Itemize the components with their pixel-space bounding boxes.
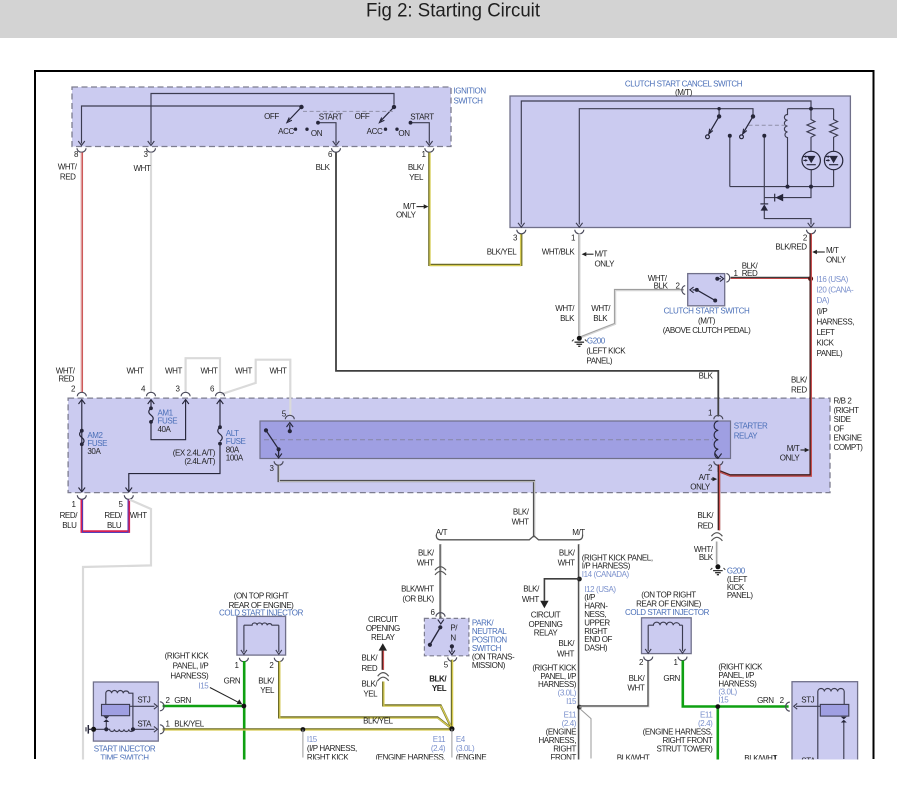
svg-text:OPENING: OPENING [366, 624, 400, 633]
svg-text:I15: I15 [566, 697, 577, 706]
svg-text:BLK/: BLK/ [791, 376, 808, 385]
svg-text:STRUT TOWER): STRUT TOWER) [657, 745, 714, 754]
svg-text:WHT: WHT [201, 366, 218, 375]
svg-text:KICK: KICK [817, 339, 835, 348]
svg-text:BLK/: BLK/ [418, 549, 435, 558]
svg-text:WHT/: WHT/ [555, 304, 575, 313]
svg-text:A/T: A/T [699, 473, 711, 482]
svg-text:R/B 2: R/B 2 [834, 397, 853, 406]
svg-text:WHT: WHT [134, 164, 151, 173]
svg-text:OFF: OFF [264, 112, 279, 121]
svg-text:BLK: BLK [654, 282, 669, 291]
svg-text:BLK/: BLK/ [558, 639, 575, 648]
svg-text:BLK: BLK [316, 163, 331, 172]
svg-text:BLK/WHT: BLK/WHT [401, 585, 434, 594]
svg-text:GRN: GRN [663, 674, 680, 683]
svg-text:SIDE: SIDE [834, 415, 851, 424]
svg-text:BLK/: BLK/ [523, 585, 540, 594]
svg-text:ON: ON [398, 129, 410, 138]
svg-text:YEL: YEL [363, 690, 378, 699]
svg-text:HARNESS,: HARNESS, [817, 317, 855, 326]
svg-text:I14 (CANADA): I14 (CANADA) [582, 570, 630, 579]
svg-text:WHT: WHT [270, 366, 287, 375]
svg-text:BLK/: BLK/ [429, 675, 447, 684]
svg-text:WHT: WHT [512, 518, 529, 527]
svg-text:ONLY: ONLY [396, 210, 417, 219]
svg-text:BLK/: BLK/ [258, 676, 275, 685]
svg-text:M/T: M/T [787, 444, 800, 453]
svg-text:WHT: WHT [127, 366, 144, 375]
svg-text:ENGINE: ENGINE [834, 434, 862, 443]
svg-text:RED: RED [362, 664, 378, 673]
svg-text:REAR OF ENGINE): REAR OF ENGINE) [636, 600, 702, 609]
svg-text:STJ: STJ [801, 696, 814, 705]
svg-text:(LEFT KICK: (LEFT KICK [586, 347, 626, 356]
svg-text:BLK: BLK [593, 314, 608, 323]
svg-text:YEL: YEL [409, 173, 424, 182]
svg-text:COMPT): COMPT) [834, 443, 864, 452]
svg-text:START INJECTOR: START INJECTOR [94, 744, 156, 753]
svg-text:WHT: WHT [417, 559, 434, 568]
svg-text:OF: OF [834, 424, 845, 433]
svg-text:CIRCUIT: CIRCUIT [531, 611, 561, 620]
svg-text:RED: RED [697, 521, 713, 530]
svg-text:PANEL, I/P: PANEL, I/P [173, 661, 209, 670]
svg-text:ONLY: ONLY [595, 259, 616, 268]
svg-text:(ABOVE CLUTCH PEDAL): (ABOVE CLUTCH PEDAL) [663, 326, 751, 335]
svg-text:BLK: BLK [560, 314, 575, 323]
svg-text:STJ: STJ [137, 696, 150, 705]
svg-text:I20 (CANA-: I20 (CANA- [817, 286, 854, 295]
svg-text:ONLY: ONLY [826, 256, 847, 265]
svg-text:ACC: ACC [367, 127, 383, 136]
svg-text:I15: I15 [307, 735, 318, 744]
svg-text:100A: 100A [226, 454, 244, 463]
svg-text:WHT: WHT [165, 366, 182, 375]
svg-text:MISSION): MISSION) [472, 661, 506, 670]
svg-text:(3.0L): (3.0L) [456, 744, 475, 753]
svg-text:Fig 2: Starting Circuit: Fig 2: Starting Circuit [366, 0, 541, 22]
svg-text:RED/: RED/ [60, 511, 79, 520]
svg-text:WHT: WHT [130, 511, 147, 520]
svg-text:COLD START INJECTOR: COLD START INJECTOR [625, 608, 710, 617]
svg-text:ON: ON [311, 129, 323, 138]
svg-text:ONLY: ONLY [690, 483, 711, 492]
svg-text:SWITCH: SWITCH [454, 97, 484, 106]
svg-text:CIRCUIT: CIRCUIT [368, 615, 398, 624]
svg-text:RELAY: RELAY [371, 633, 396, 642]
svg-text:(RIGHT: (RIGHT [834, 406, 860, 415]
svg-text:BLK/RED: BLK/RED [775, 243, 807, 252]
svg-text:BLK/YEL: BLK/YEL [487, 248, 517, 257]
svg-text:START: START [410, 112, 434, 121]
svg-text:I15: I15 [718, 696, 729, 705]
svg-text:G200: G200 [587, 337, 606, 346]
svg-text:40A: 40A [158, 425, 172, 434]
svg-text:(RIGHT KICK: (RIGHT KICK [165, 651, 210, 660]
svg-text:ONLY: ONLY [780, 454, 801, 463]
svg-text:30A: 30A [87, 447, 101, 456]
svg-text:(M/T): (M/T) [698, 316, 716, 325]
svg-text:RELAY: RELAY [734, 432, 759, 441]
svg-text:GRN: GRN [757, 696, 774, 705]
svg-text:(I/P HARNESS,: (I/P HARNESS, [307, 744, 357, 753]
svg-text:GRN: GRN [174, 696, 191, 705]
svg-text:BLK/YEL: BLK/YEL [174, 719, 204, 728]
svg-text:WHT: WHT [558, 559, 575, 568]
svg-text:A/T: A/T [436, 528, 448, 537]
svg-text:OFF: OFF [355, 112, 370, 121]
svg-text:GRN: GRN [224, 676, 241, 685]
svg-text:(2.4): (2.4) [431, 744, 446, 753]
svg-text:WHT/: WHT/ [58, 163, 78, 172]
svg-text:M/T: M/T [826, 246, 839, 255]
svg-text:(M/T): (M/T) [675, 88, 693, 97]
svg-text:PANEL): PANEL) [586, 357, 613, 366]
svg-text:YEL: YEL [260, 686, 275, 695]
svg-text:BLK: BLK [699, 553, 714, 562]
svg-text:STA: STA [137, 719, 152, 728]
svg-text:BLK/: BLK/ [513, 508, 530, 517]
svg-text:BLU: BLU [62, 521, 77, 530]
svg-text:(ON TOP RIGHT: (ON TOP RIGHT [641, 590, 696, 599]
svg-text:BLK/YEL: BLK/YEL [363, 716, 393, 725]
svg-text:WHT/BLK: WHT/BLK [542, 248, 576, 257]
svg-text:BLK/: BLK/ [697, 511, 714, 520]
svg-text:M/T: M/T [572, 528, 585, 537]
svg-text:(I/P: (I/P [817, 307, 828, 316]
svg-text:RED: RED [58, 374, 74, 383]
svg-text:(2.4L A/T): (2.4L A/T) [184, 457, 215, 466]
svg-text:RED: RED [791, 385, 807, 394]
svg-text:BLK: BLK [699, 372, 714, 381]
svg-text:N: N [450, 633, 456, 642]
svg-text:BLU: BLU [107, 521, 122, 530]
svg-text:WHT: WHT [627, 683, 644, 692]
svg-text:BLK/: BLK/ [362, 680, 379, 689]
svg-text:BLK/: BLK/ [362, 654, 379, 663]
svg-text:RED: RED [60, 172, 76, 181]
svg-text:HARNESS): HARNESS) [170, 671, 209, 680]
svg-text:G200: G200 [727, 567, 746, 576]
svg-text:WHT: WHT [522, 595, 539, 604]
svg-text:STARTER: STARTER [734, 421, 768, 430]
svg-text:CLUTCH START SWITCH: CLUTCH START SWITCH [664, 307, 750, 316]
svg-text:YEL: YEL [432, 684, 447, 693]
svg-text:I15: I15 [198, 681, 209, 690]
svg-text:BLK/: BLK/ [408, 163, 425, 172]
svg-text:WHT: WHT [235, 366, 252, 375]
svg-text:START: START [319, 112, 343, 121]
svg-text:(ON TOP RIGHT: (ON TOP RIGHT [234, 592, 289, 601]
svg-text:BLK/: BLK/ [559, 549, 576, 558]
svg-text:ACC: ACC [278, 127, 294, 136]
svg-text:PANEL): PANEL) [727, 591, 754, 600]
svg-text:E4: E4 [456, 735, 466, 744]
svg-text:BLK/: BLK/ [629, 674, 646, 683]
svg-text:(OR BLK): (OR BLK) [402, 595, 434, 604]
svg-text:WHT: WHT [557, 649, 574, 658]
svg-text:PANEL): PANEL) [817, 349, 844, 358]
svg-text:I16 (USA): I16 (USA) [817, 275, 849, 284]
svg-text:IGNITION: IGNITION [454, 87, 487, 96]
svg-text:M/T: M/T [595, 249, 608, 258]
svg-text:RELAY: RELAY [534, 628, 559, 637]
svg-text:LEFT: LEFT [817, 328, 835, 337]
svg-text:E11: E11 [433, 735, 446, 744]
svg-text:WHT/: WHT/ [591, 304, 611, 313]
svg-text:RED/: RED/ [104, 511, 123, 520]
svg-text:RED: RED [742, 269, 758, 278]
svg-text:DA): DA) [817, 296, 830, 305]
svg-text:DASH): DASH) [584, 644, 608, 653]
